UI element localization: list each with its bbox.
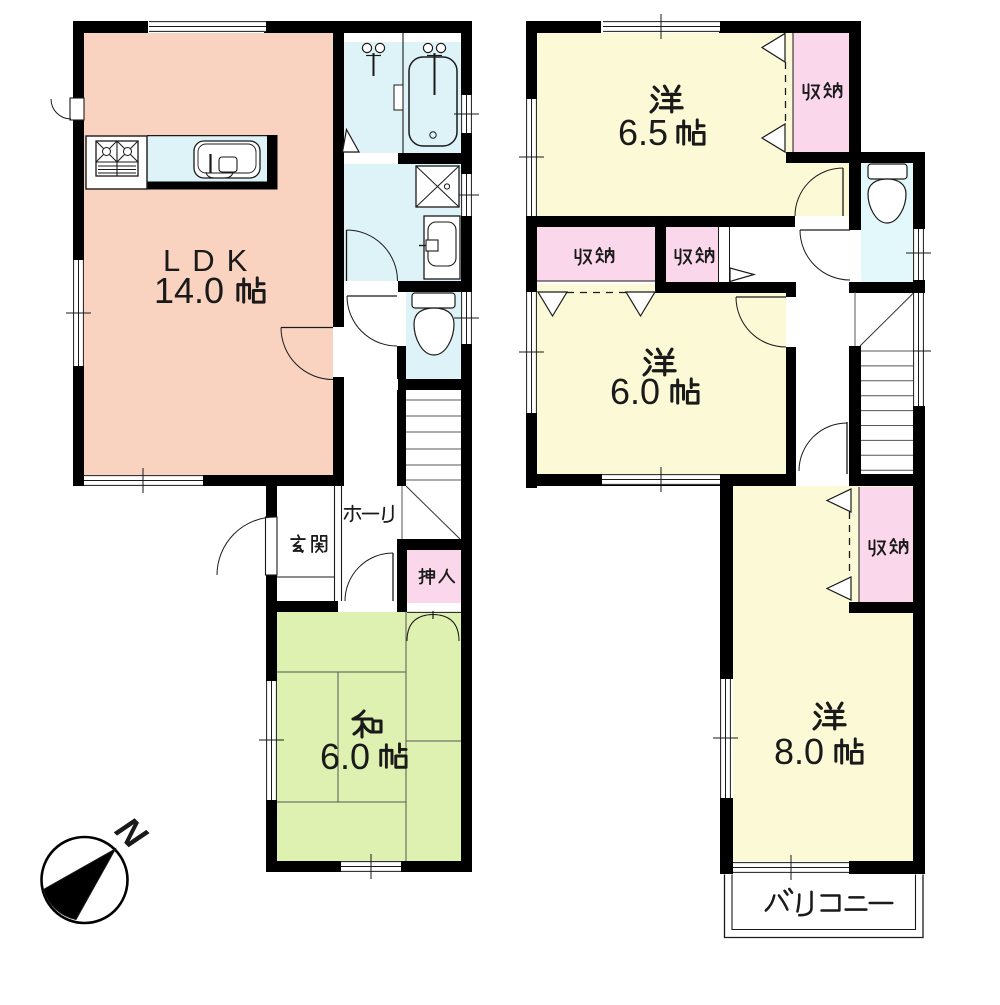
- svg-text:6.0: 6.0: [610, 371, 660, 412]
- svg-text:14.0: 14.0: [154, 270, 224, 311]
- svg-text:6.5: 6.5: [618, 112, 668, 153]
- svg-text:6.0: 6.0: [320, 736, 370, 777]
- svg-text:8.0: 8.0: [774, 731, 824, 772]
